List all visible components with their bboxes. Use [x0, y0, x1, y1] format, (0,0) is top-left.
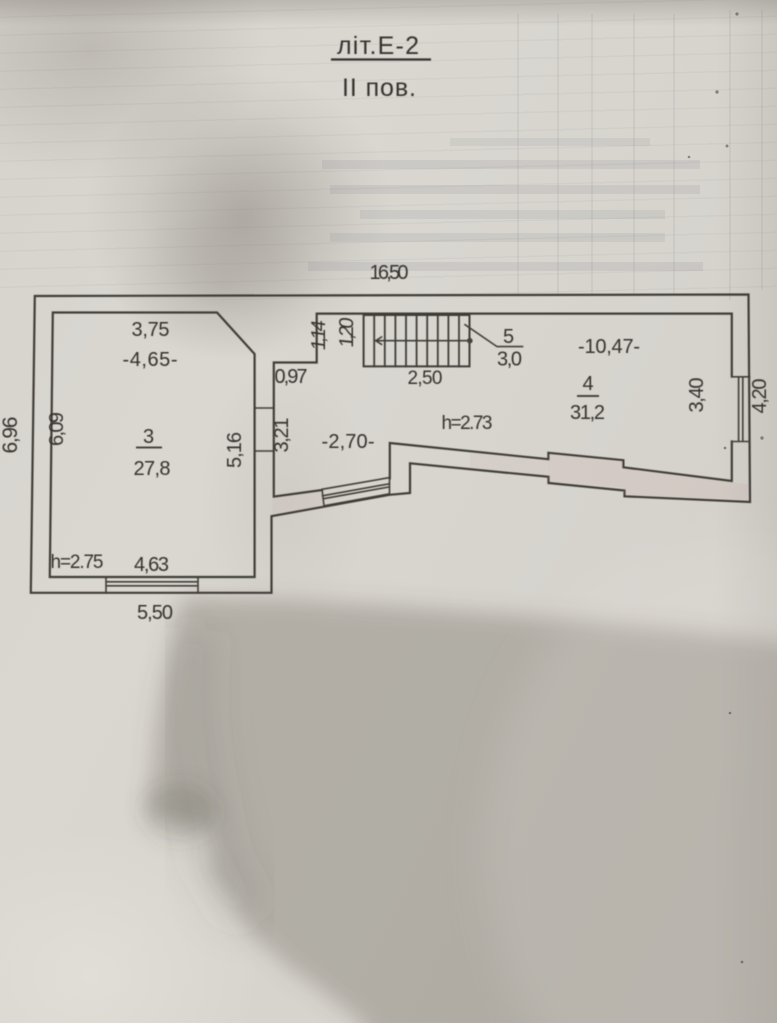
svg-text:5: 5 — [503, 326, 514, 348]
svg-text:3: 3 — [143, 426, 154, 448]
svg-text:0,97: 0,97 — [275, 366, 308, 388]
svg-text:-10,47-: -10,47- — [578, 336, 640, 358]
svg-text:h=2.75: h=2.75 — [51, 552, 104, 573]
svg-text:-4,65-: -4,65- — [123, 349, 178, 371]
svg-text:літ.Е-2: літ.Е-2 — [337, 32, 419, 60]
svg-text:4: 4 — [582, 373, 593, 395]
svg-text:5,50: 5,50 — [137, 602, 173, 624]
svg-text:1,20: 1,20 — [336, 316, 358, 348]
svg-text:1,14: 1,14 — [308, 319, 330, 352]
svg-text:II пов.: II пов. — [342, 74, 416, 102]
svg-text:3,0: 3,0 — [497, 349, 522, 371]
svg-text:4,63: 4,63 — [134, 554, 169, 576]
svg-text:6,09: 6,09 — [46, 412, 68, 446]
svg-text:5,16: 5,16 — [224, 432, 246, 468]
svg-text:3,21: 3,21 — [271, 418, 293, 453]
svg-text:3,40: 3,40 — [686, 378, 708, 413]
svg-text:-2,70-: -2,70- — [322, 431, 375, 453]
svg-text:h=2.73: h=2.73 — [442, 413, 493, 434]
svg-text:16,50: 16,50 — [370, 262, 409, 284]
svg-text:3,75: 3,75 — [132, 319, 170, 341]
svg-text:2,50: 2,50 — [408, 368, 443, 389]
svg-text:6,96: 6,96 — [0, 417, 22, 454]
svg-text:27,8: 27,8 — [134, 458, 171, 480]
svg-text:4,20: 4,20 — [749, 379, 771, 414]
svg-text:31,2: 31,2 — [570, 402, 605, 424]
